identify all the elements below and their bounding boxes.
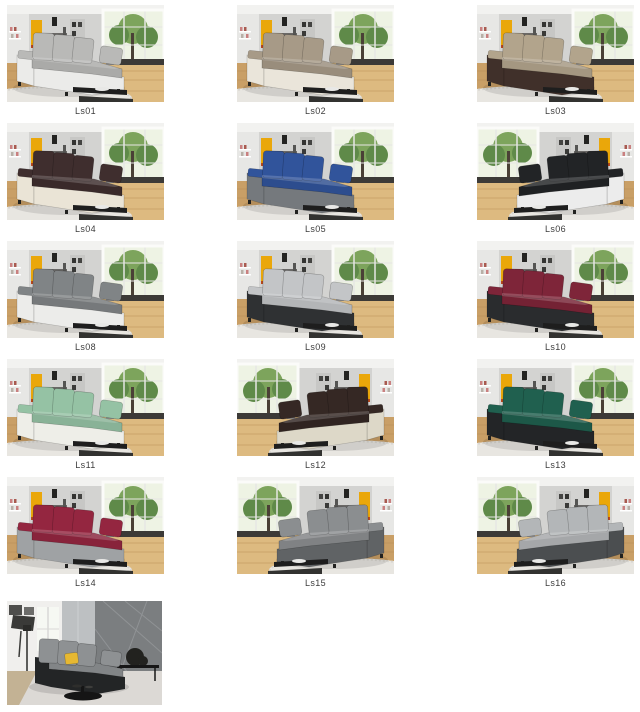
gallery-item-ls04[interactable]: Ls04 bbox=[7, 123, 164, 234]
product-image-ls09[interactable] bbox=[237, 241, 394, 338]
gallery-item-ls05[interactable]: Ls05 bbox=[237, 123, 394, 234]
gallery-item-ls02[interactable]: Ls02 bbox=[237, 5, 394, 116]
product-label: Ls11 bbox=[7, 456, 164, 470]
product-image-ls11[interactable] bbox=[7, 359, 164, 456]
product-image-ls01[interactable] bbox=[7, 5, 164, 102]
gallery-item-ls14[interactable]: Ls14 bbox=[7, 477, 164, 588]
product-label: Ls15 bbox=[237, 574, 394, 588]
product-image-ls13[interactable] bbox=[477, 359, 634, 456]
product-image-ls05[interactable] bbox=[237, 123, 394, 220]
product-label: Ls10 bbox=[477, 338, 634, 352]
product-image-ls06[interactable] bbox=[477, 123, 634, 220]
product-image-ls08[interactable] bbox=[7, 241, 164, 338]
product-image-modern[interactable] bbox=[7, 601, 162, 705]
product-label: Ls02 bbox=[237, 102, 394, 116]
gallery-item-ls03[interactable]: Ls03 bbox=[477, 5, 634, 116]
product-label: Ls03 bbox=[477, 102, 634, 116]
product-gallery: Ls01Ls02Ls03Ls04Ls05Ls06Ls08Ls09Ls10Ls11… bbox=[0, 0, 640, 712]
product-label: Ls09 bbox=[237, 338, 394, 352]
product-label: Ls01 bbox=[7, 102, 164, 116]
gallery-item-ls16[interactable]: Ls16 bbox=[477, 477, 634, 588]
product-image-ls02[interactable] bbox=[237, 5, 394, 102]
product-label: Ls14 bbox=[7, 574, 164, 588]
product-image-ls15[interactable] bbox=[237, 477, 394, 574]
product-label: Ls13 bbox=[477, 456, 634, 470]
product-image-ls12[interactable] bbox=[237, 359, 394, 456]
product-image-ls14[interactable] bbox=[7, 477, 164, 574]
product-label: Ls08 bbox=[7, 338, 164, 352]
gallery-item-modern[interactable] bbox=[7, 601, 162, 705]
product-label: Ls12 bbox=[237, 456, 394, 470]
gallery-item-ls15[interactable]: Ls15 bbox=[237, 477, 394, 588]
gallery-item-ls01[interactable]: Ls01 bbox=[7, 5, 164, 116]
gallery-item-ls08[interactable]: Ls08 bbox=[7, 241, 164, 352]
gallery-item-ls06[interactable]: Ls06 bbox=[477, 123, 634, 234]
gallery-item-ls13[interactable]: Ls13 bbox=[477, 359, 634, 470]
product-label: Ls06 bbox=[477, 220, 634, 234]
product-label: Ls04 bbox=[7, 220, 164, 234]
product-image-ls16[interactable] bbox=[477, 477, 634, 574]
gallery-item-ls09[interactable]: Ls09 bbox=[237, 241, 394, 352]
product-image-ls03[interactable] bbox=[477, 5, 634, 102]
product-label: Ls16 bbox=[477, 574, 634, 588]
product-label: Ls05 bbox=[237, 220, 394, 234]
product-image-ls04[interactable] bbox=[7, 123, 164, 220]
gallery-item-ls10[interactable]: Ls10 bbox=[477, 241, 634, 352]
gallery-item-ls12[interactable]: Ls12 bbox=[237, 359, 394, 470]
gallery-item-ls11[interactable]: Ls11 bbox=[7, 359, 164, 470]
product-image-ls10[interactable] bbox=[477, 241, 634, 338]
